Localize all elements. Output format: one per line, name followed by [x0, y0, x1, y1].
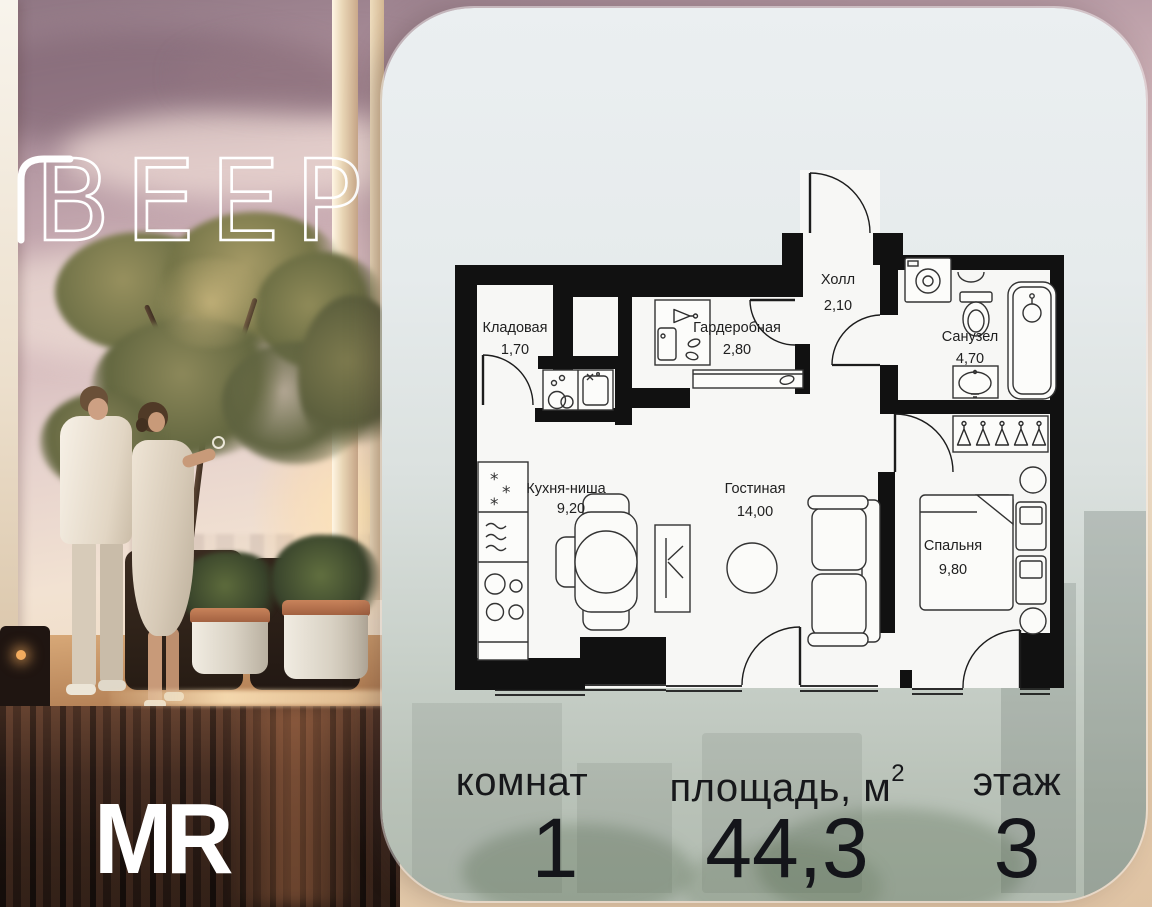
photo-man	[66, 684, 96, 695]
room-area: 14,00	[737, 504, 773, 520]
photo-man	[60, 416, 132, 544]
photo-woman	[148, 412, 165, 432]
laundry-sink	[543, 370, 613, 410]
svg-text:*: *	[490, 470, 499, 490]
bedroom-stool	[1020, 467, 1046, 493]
photo-candle	[16, 650, 26, 660]
veer-logo: ВЕЕР	[8, 136, 384, 252]
room-label: Гардеробная	[693, 320, 781, 336]
room-label: Спальня	[924, 538, 982, 554]
svg-text:*: *	[490, 495, 499, 515]
tv-stand	[655, 525, 690, 612]
photo-planter-pot	[284, 615, 368, 679]
svg-text:*: *	[502, 483, 511, 503]
room-label: Кладовая	[483, 320, 548, 336]
area-value: 44,3	[617, 806, 957, 890]
room-area: 1,70	[501, 342, 529, 358]
mr-developer-logo: MR	[94, 782, 227, 897]
photo-wine-glass	[212, 436, 225, 449]
room-label: Санузел	[942, 329, 999, 345]
photo-planter-pot	[190, 608, 270, 623]
bathtub	[1008, 282, 1056, 399]
floorplan: ***	[450, 160, 1070, 705]
area-label-sup: 2	[891, 760, 904, 787]
info-panel: ***	[382, 8, 1146, 901]
room-area: 2,10	[824, 298, 852, 314]
coffee-table	[727, 543, 777, 593]
veer-logo-text: ВЕЕР	[34, 137, 376, 252]
bathroom-sink	[953, 366, 998, 398]
photo-terrace-fascia	[230, 706, 360, 906]
photo-man	[100, 538, 123, 686]
photo-tree-foliage	[148, 258, 273, 348]
bedroom-stool	[1020, 608, 1046, 634]
listing-card: ВЕЕР MR	[0, 0, 1152, 907]
photo-man	[72, 538, 96, 690]
photo-woman	[136, 418, 148, 432]
kitchen-counter: ***	[478, 462, 528, 660]
room-area: 9,20	[557, 501, 585, 517]
room-label: Кухня-ниша	[526, 481, 606, 497]
photo-woman	[132, 440, 194, 636]
room-area: 9,80	[939, 562, 967, 578]
closet-hangers	[953, 416, 1048, 452]
floor-label: этаж	[917, 760, 1117, 805]
room-label: Холл	[821, 272, 855, 288]
floor-value: 3	[917, 806, 1117, 890]
photo-planter-pot	[282, 600, 370, 616]
photo-planter-pot	[192, 622, 268, 674]
room-label: Гостиная	[725, 481, 786, 497]
photo-man	[88, 398, 108, 420]
room-area: 4,70	[956, 351, 984, 367]
room-area: 2,80	[723, 342, 751, 358]
photo-woman	[166, 628, 179, 696]
photo-terrace-ledge-light	[110, 690, 400, 706]
washing-machine	[905, 258, 951, 302]
rooms-count-label: комнат	[422, 760, 622, 805]
photo-building-edge	[0, 0, 18, 640]
